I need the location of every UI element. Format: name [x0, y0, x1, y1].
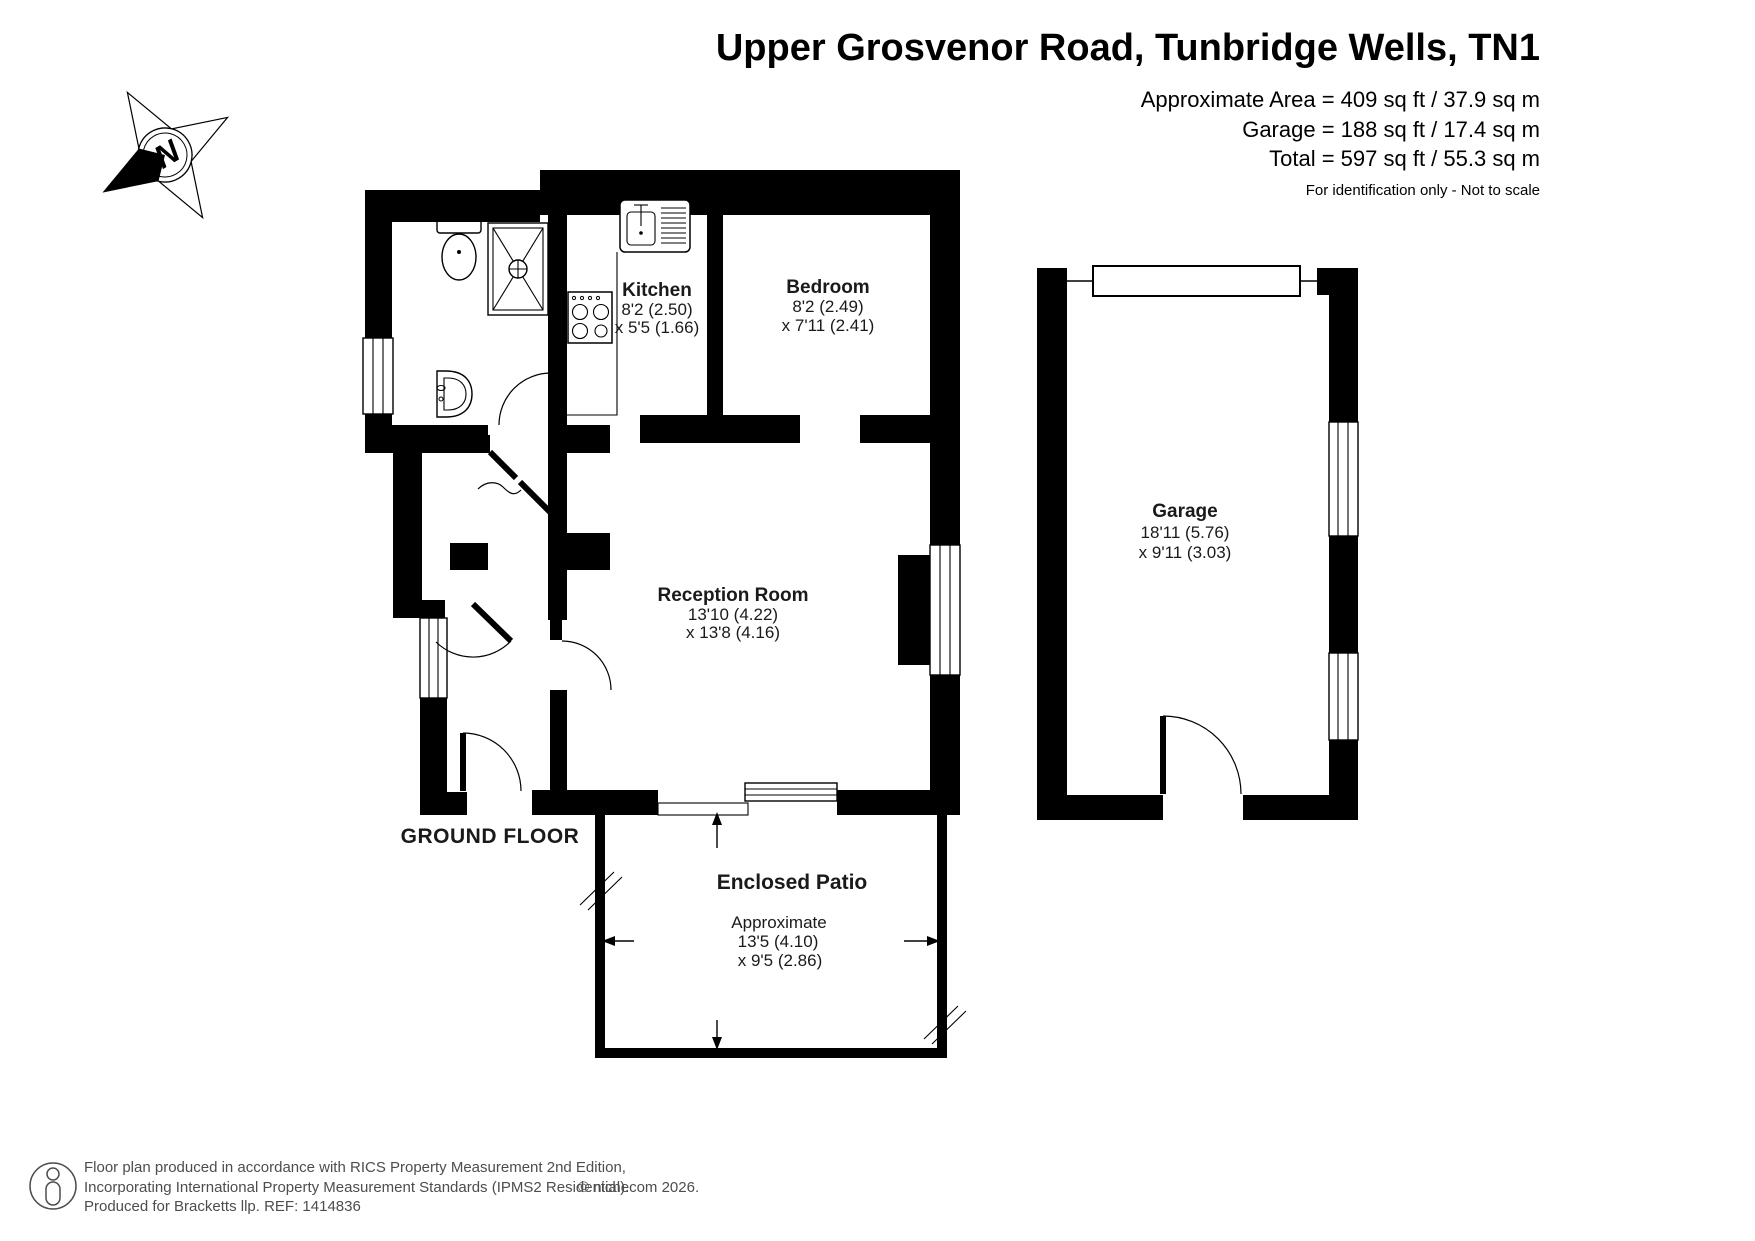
patio-dim1: 13'5 (4.10): [738, 932, 819, 951]
reception-dim2: x 13'8 (4.16): [686, 623, 780, 642]
garage-dim2: x 9'11 (3.03): [1139, 543, 1232, 562]
window-icon: [420, 618, 447, 698]
bedroom-name: Bedroom: [786, 277, 869, 298]
patio-threshold: [658, 803, 748, 815]
ground-floor-label: GROUND FLOOR: [401, 825, 580, 848]
reception-dim1: 13'10 (4.22): [688, 605, 778, 624]
kitchen-dim2: x 5'5 (1.66): [615, 318, 700, 337]
patio-name: Enclosed Patio: [717, 871, 868, 894]
compass-icon: N: [65, 55, 265, 255]
room-labels: Kitchen 8'2 (2.50) x 5'5 (1.66) Bedroom …: [401, 277, 1232, 970]
bedroom-label: Bedroom 8'2 (2.49) x 7'11 (2.41): [782, 277, 875, 335]
kitchen-name: Kitchen: [622, 280, 692, 301]
lobby-reception-door: [562, 641, 611, 690]
bedroom-dim1: 8'2 (2.49): [792, 297, 863, 316]
page-title: Upper Grosvenor Road, Tunbridge Wells, T…: [716, 27, 1540, 69]
shower-icon: [488, 223, 548, 315]
window-icon: [1329, 653, 1358, 740]
vestibule-door-leaf: [490, 452, 516, 478]
floorplan-canvas: Upper Grosvenor Road, Tunbridge Wells, T…: [0, 0, 1755, 1241]
reception-name: Reception Room: [658, 585, 809, 606]
patio-qualifier: Approximate: [731, 913, 826, 932]
kitchen-label: Kitchen 8'2 (2.50) x 5'5 (1.66): [615, 280, 700, 337]
bathroom-door: [499, 373, 551, 425]
approximate-area-text: Approximate Area = 409 sq ft / 37.9 sq m: [1141, 87, 1540, 112]
hob-icon: [568, 292, 612, 343]
garage-dim1: 18'11 (5.76): [1141, 523, 1230, 542]
main-building-walls: [365, 170, 960, 815]
sink-icon: [620, 200, 690, 252]
garage-name: Garage: [1152, 501, 1217, 522]
footer: Floor plan produced in accordance with R…: [30, 1159, 699, 1215]
garage-door: [1093, 266, 1300, 296]
footer-line3: Produced for Bracketts llp. REF: 1414836: [84, 1198, 361, 1215]
garage-area-text: Garage = 188 sq ft / 17.4 sq m: [1242, 117, 1540, 142]
footer-copyright: © nichecom 2026.: [578, 1179, 699, 1196]
person-icon: [30, 1163, 76, 1209]
total-area-text: Total = 597 sq ft / 55.3 sq m: [1269, 146, 1540, 171]
front-door: [463, 733, 521, 791]
window-icon: [930, 545, 960, 675]
window-icon: [1329, 422, 1358, 536]
kitchen-dim1: 8'2 (2.50): [621, 300, 692, 319]
patio-dim2: x 9'5 (2.86): [738, 951, 823, 970]
footer-line1: Floor plan produced in accordance with R…: [84, 1159, 626, 1176]
window-icon: [745, 783, 837, 801]
garage-side-door: [1163, 716, 1241, 794]
bathroom-fixtures: [437, 213, 551, 425]
basin-icon: [437, 371, 472, 417]
chimney-breast: [898, 555, 930, 665]
hall-door-leaf: [473, 604, 511, 641]
garage-label: Garage 18'11 (5.76) x 9'11 (3.03): [1139, 501, 1232, 562]
vestibule-door-swing: [478, 483, 521, 494]
bedroom-dim2: x 7'11 (2.41): [782, 316, 875, 335]
patio-left-boundary: [595, 815, 605, 1058]
footer-line2: Incorporating International Property Mea…: [84, 1179, 629, 1196]
scale-note: For identification only - Not to scale: [1306, 182, 1540, 199]
toilet-icon: [437, 213, 481, 280]
patio-label: Enclosed Patio Approximate 13'5 (4.10) x…: [717, 871, 868, 970]
hall-doors: [436, 452, 611, 791]
patio-bottom-boundary: [595, 1048, 947, 1058]
window-icon: [363, 338, 393, 414]
reception-label: Reception Room 13'10 (4.22) x 13'8 (4.16…: [658, 585, 809, 642]
